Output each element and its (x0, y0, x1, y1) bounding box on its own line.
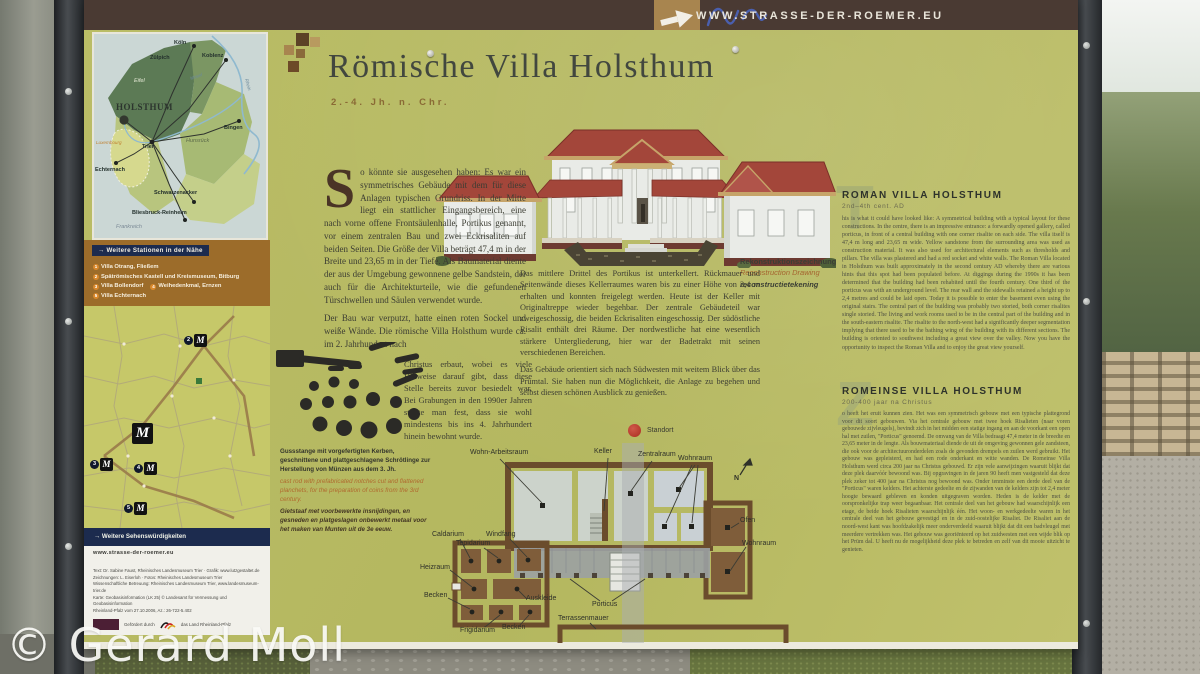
m-logo-icon: M (194, 334, 207, 347)
map-region-label: Eifel (134, 78, 145, 84)
room-label-heizraum: Heizraum (420, 564, 450, 571)
m-logo-icon: M (134, 502, 147, 515)
station-label: Weihedenkmal, Ernzen (158, 283, 221, 290)
station-label: Villa Echternach (101, 293, 146, 300)
room-label-wohnraum: Wohnraum (678, 455, 712, 462)
map-marker-2: 2M (184, 334, 207, 347)
bolt (1083, 620, 1090, 627)
screw (732, 46, 739, 53)
credits-line: Rheinland-Pfalz vom 27.10.2006, Az.: 26-… (93, 608, 263, 615)
station-item: 1Villa Otrang, Fließem (93, 264, 159, 271)
station-item: 4Weihedenkmal, Ernzen (150, 283, 221, 290)
overview-map: HOLSTHUM Köln Zülpich Koblenz Bingen Tri… (94, 34, 266, 238)
station-label: Villa Otrang, Fließem (101, 264, 159, 271)
map-city-label: Koblenz (202, 53, 223, 59)
stations-panel: → Weitere Stationen in der Nähe 1Villa O… (84, 240, 270, 306)
middle-paragraph-2: Das Gebäude orientiert sich nach Südwest… (520, 364, 760, 398)
map-marker-3: 3M (90, 458, 113, 471)
dutch-subheading: 200-400 jaar na Christus (842, 399, 1070, 406)
strasse-der-roemer-arrow-logo (654, 0, 700, 30)
station-item: 5Villa Echternach (93, 293, 146, 300)
room-label-auskleide: Auskleide (526, 595, 556, 602)
station-number: 3 (93, 284, 99, 290)
bolt (65, 543, 72, 550)
marker-number: 2 (184, 336, 193, 345)
credits-text: Text: Dr. Sabine Faust, Rheinisches Land… (93, 568, 263, 615)
map-marker-5: 5M (124, 502, 147, 515)
map-region-label: Luxembourg (96, 140, 122, 145)
middle-paragraph-1: Das mittlere Drittel des Portikus ist un… (520, 268, 760, 358)
artifact-caption-en: cast rod with prefabricated notches cut … (280, 478, 432, 505)
overview-map-graphic (94, 34, 266, 238)
credits-url: www.strasse-der-roemer.eu (93, 550, 174, 556)
arrow-icon (654, 0, 700, 30)
room-label-tepidarium: Tepidarium (456, 540, 490, 547)
station-number: 1 (93, 264, 99, 270)
website-url: WWW.STRASSE-DER-ROEMER.EU (696, 10, 944, 22)
bolt (65, 318, 72, 325)
information-board: WWW.STRASSE-DER-ROEMER.EU (84, 0, 1078, 649)
m-logo-icon: M (132, 423, 153, 444)
marker-number: 4 (134, 464, 143, 473)
station-number: 4 (150, 284, 156, 290)
room-label-becken: Becken (424, 592, 447, 599)
dutch-section: Z ROMEINSE VILLA HOLSTHUM 200-400 jaar n… (842, 386, 1070, 554)
photographer-watermark: © Gerard Moll (6, 618, 346, 672)
bolt (1083, 42, 1090, 49)
station-number: 5 (93, 293, 99, 299)
map-city-label: Schwarzenacker (154, 190, 197, 196)
road-map-graphic (84, 306, 270, 528)
dutch-heading: ROMEINSE VILLA HOLSTHUM (842, 386, 1070, 397)
decorative-squares (280, 33, 320, 77)
map-region-label: Frankreich (116, 224, 142, 230)
room-label-zentralraum: Zentralraum (638, 451, 676, 458)
map-city-label: Echternach (95, 167, 125, 173)
artifacts-photo (276, 342, 428, 446)
north-arrow-label: N (734, 475, 739, 482)
board-topbar: WWW.STRASSE-DER-ROEMER.EU (84, 0, 1078, 30)
sights-heading: → Weitere Sehenswürdigkeiten (84, 528, 270, 546)
board-title: Römische Villa Holsthum (328, 48, 715, 86)
room-label-keller: Keller (594, 448, 612, 455)
board-subtitle: 2.-4. Jh. n. Chr. (331, 97, 450, 108)
station-item: 3Villa Bollendorf (93, 283, 143, 290)
room-label-caldarium: Caldarium (432, 531, 464, 538)
english-section: T ROMAN VILLA HOLSTHUM 2nd–4th cent. AD … (842, 190, 1070, 352)
map-city-label: Zülpich (150, 55, 170, 61)
credits-line: Wissenschaftliche Betreuung: Rheinisches… (93, 581, 263, 594)
standort-dot (628, 424, 641, 437)
room-label-frigidarium: Frigidarium (460, 627, 495, 634)
standort-label: Standort (647, 427, 673, 434)
artifacts-caption: Gussstange mit vorgefertigten Kerben, ge… (280, 448, 432, 538)
artifact-caption-nl: Gietstaaf met voorbewerkte insnijdingen,… (280, 508, 432, 535)
map-city-label: Bingen (224, 125, 243, 131)
marker-number: 5 (124, 504, 133, 513)
station-item: 2Spätrömisches Kastell und Kreismuseum, … (93, 274, 239, 281)
stations-list: 1Villa Otrang, Fließem 2Spätrömisches Ka… (93, 264, 265, 300)
map-city-label: Trier (142, 144, 154, 150)
room-label-wohn-arbeitsraum: Wohn-Arbeitsraum (470, 449, 528, 456)
room-label-windfang: Windfang (486, 531, 516, 538)
credits-line: Zeichnungen: L. Eiserloh · Fotos: Rheini… (93, 575, 263, 582)
station-number: 2 (93, 274, 99, 280)
stations-heading: → Weitere Stationen in der Nähe (92, 245, 209, 256)
caption-de: Rekonstruktionszeichnung (740, 256, 836, 267)
german-text-column-2: Das mittlere Drittel des Portikus ist un… (520, 268, 760, 404)
photo-of-information-board: WWW.STRASSE-DER-ROEMER.EU (0, 0, 1200, 674)
station-label: Villa Bollendorf (101, 283, 143, 290)
standort-legend: Standort (628, 424, 673, 437)
bolt (65, 88, 72, 95)
floor-plan: Wohn-Arbeitsraum Keller Zentralraum Wohn… (440, 443, 800, 643)
m-logo-icon: M (144, 462, 157, 475)
room-label-porticus: Porticus (592, 601, 617, 608)
map-label-holsthum: HOLSTHUM (116, 102, 173, 112)
artifact-caption-de: Gussstange mit vorgefertigten Kerben, ge… (280, 448, 432, 475)
room-label-terrassenmauer: Terrassenmauer (558, 615, 609, 622)
map-marker-current: M (132, 423, 153, 444)
blurred-left-background (0, 0, 56, 674)
credits-line: Karte: Geobasisinformation (LK 25) © Lan… (93, 595, 263, 608)
room-label-ofen: Ofen (740, 517, 755, 524)
bolt (1083, 298, 1090, 305)
german-text-column: S o könnte sie ausgesehen haben: Es war … (324, 166, 526, 357)
station-label: Spätrömisches Kastell und Kreismuseum, B… (101, 274, 239, 281)
room-label-becken-2: Becken (502, 624, 525, 631)
map-region-label: Hunsrück (186, 138, 209, 144)
english-subheading: 2nd–4th cent. AD (842, 203, 1070, 210)
room-label-wohnraum-2: Wohnraum (742, 540, 776, 547)
dropcap-s: S (324, 168, 355, 212)
dutch-body: o heeft het eruit kunnen zien. Het was e… (842, 411, 1070, 554)
map-city-label: Köln (174, 40, 186, 46)
credits-line: Text: Dr. Sabine Faust, Rheinisches Land… (93, 568, 263, 575)
marker-number: 3 (90, 460, 99, 469)
map-city-label: Bliesbruck-Reinheim (132, 210, 187, 216)
signpost-left (54, 0, 84, 674)
map-marker-4: 4M (134, 462, 157, 475)
road-map: 2M M 3M 4M 5M (84, 306, 270, 528)
english-body: his is what it could have looked like: A… (842, 215, 1070, 352)
english-heading: ROMAN VILLA HOLSTHUM (842, 190, 1070, 201)
m-logo-icon: M (100, 458, 113, 471)
